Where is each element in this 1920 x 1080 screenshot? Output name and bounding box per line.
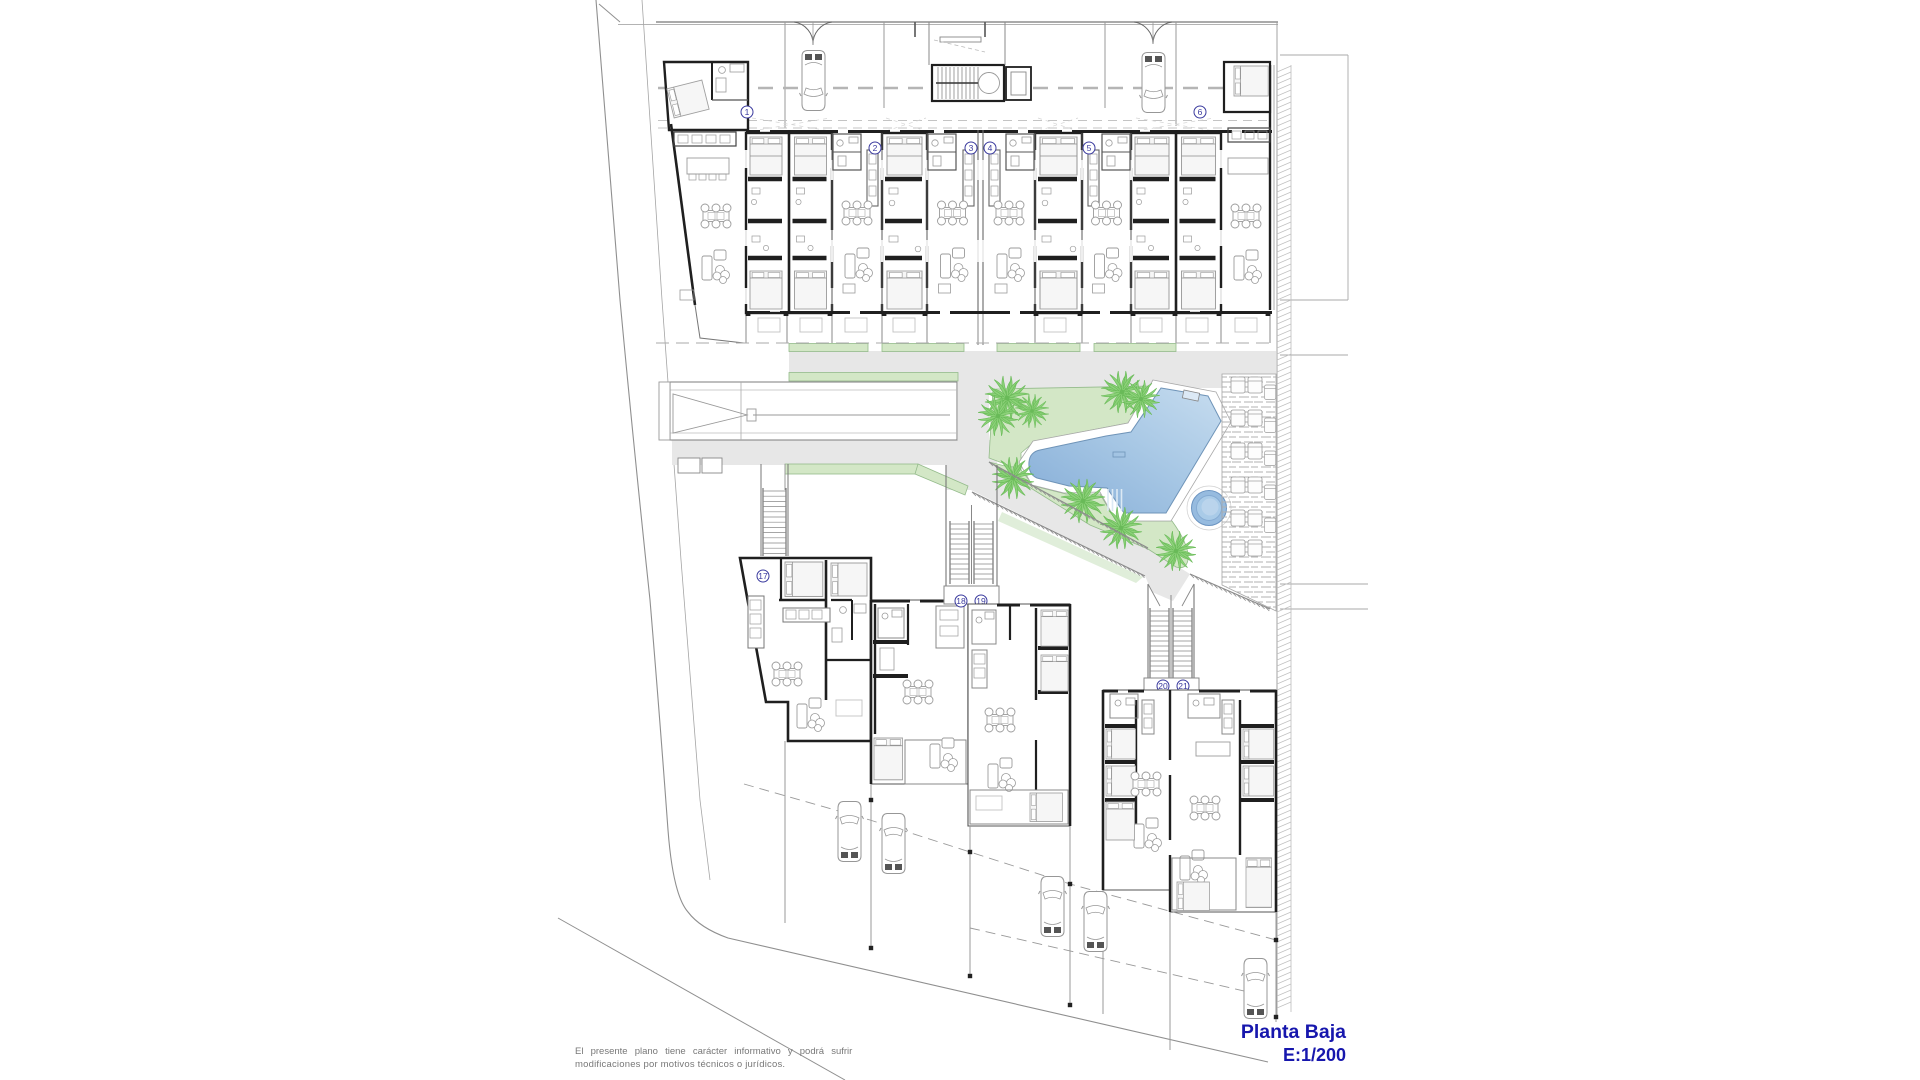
- svg-text:17: 17: [758, 571, 768, 581]
- svg-text:Planta Baja: Planta Baja: [1241, 1021, 1346, 1043]
- svg-text:E:1/200: E:1/200: [1283, 1045, 1346, 1065]
- svg-text:3: 3: [969, 143, 974, 153]
- svg-text:5: 5: [1087, 143, 1092, 153]
- svg-text:6: 6: [1198, 107, 1203, 117]
- svg-text:2: 2: [873, 143, 878, 153]
- svg-text:21: 21: [1178, 681, 1188, 691]
- svg-text:El presente plano tiene caráct: El presente plano tiene carácter informa…: [575, 1046, 852, 1057]
- svg-text:4: 4: [988, 143, 993, 153]
- svg-text:1: 1: [745, 107, 750, 117]
- svg-text:18: 18: [956, 596, 966, 606]
- svg-text:modificaciones por motivos téc: modificaciones por motivos técnicos o ju…: [575, 1059, 785, 1070]
- svg-text:20: 20: [1158, 681, 1168, 691]
